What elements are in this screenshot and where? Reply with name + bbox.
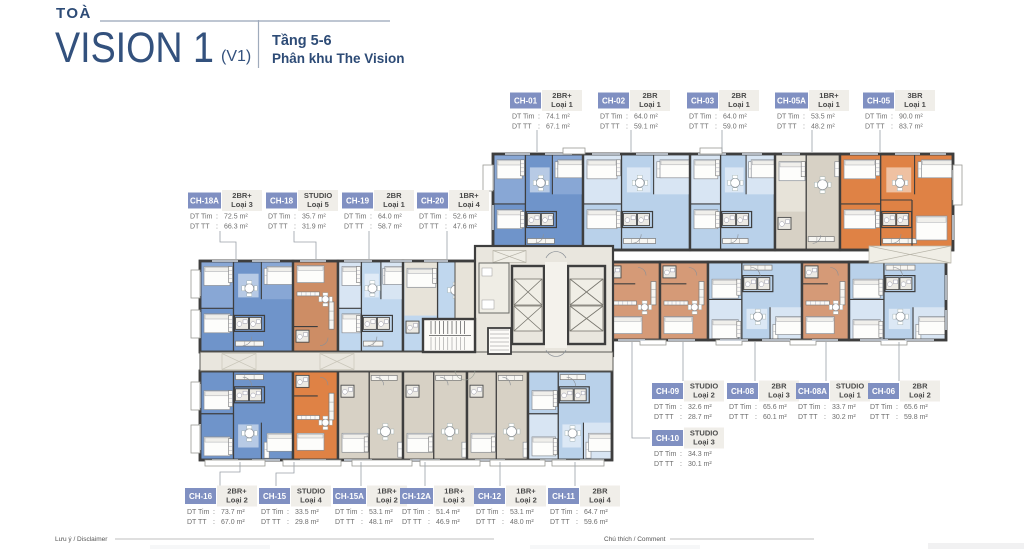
svg-text:CH-03: CH-03 [691,97,715,106]
svg-text:Lưu ý / Disclaimer: Lưu ý / Disclaimer [55,536,108,543]
svg-text::: : [538,124,540,131]
svg-text:CH-08: CH-08 [731,387,755,396]
svg-text:Loại 2: Loại 2 [376,496,398,505]
svg-text:83.7 m²: 83.7 m² [899,124,923,131]
svg-text:2BR: 2BR [386,191,402,200]
svg-text::: : [294,214,296,221]
svg-text:59.1 m²: 59.1 m² [634,124,658,131]
svg-text:Chú thích / Comment: Chú thích / Comment [604,536,666,543]
svg-text:DT TT: DT TT [777,124,797,131]
svg-text:2BR: 2BR [592,487,608,496]
svg-text:53.1 m²: 53.1 m² [369,509,393,516]
svg-text:48.1 m²: 48.1 m² [369,519,393,526]
svg-text:DT TT: DT TT [187,519,207,526]
svg-text:DT Tim: DT Tim [798,404,821,411]
svg-text::: : [896,414,898,421]
svg-text:DT TT: DT TT [870,414,890,421]
svg-text:CH-15: CH-15 [263,492,287,501]
svg-text::: : [576,509,578,516]
svg-text:59.0 m²: 59.0 m² [723,124,747,131]
svg-text::: : [216,214,218,221]
svg-text:2BR+: 2BR+ [552,91,572,100]
svg-text::: : [891,114,893,121]
svg-text:CH-10: CH-10 [656,434,680,443]
svg-text::: : [445,214,447,221]
svg-text:DT TT: DT TT [550,519,570,526]
svg-text:CH-16: CH-16 [189,492,213,501]
svg-text:DT Tim: DT Tim [550,509,573,516]
svg-text:(V1): (V1) [221,48,251,65]
svg-text:2BR+: 2BR+ [227,487,247,496]
svg-text::: : [803,114,805,121]
svg-text:DT Tim: DT Tim [419,214,442,221]
svg-text::: : [370,214,372,221]
svg-text:51.4 m²: 51.4 m² [436,509,460,516]
svg-text:35.7 m²: 35.7 m² [302,214,326,221]
svg-text:64.7 m²: 64.7 m² [584,509,608,516]
svg-text:CH-12: CH-12 [478,492,502,501]
svg-text:DT Tim: DT Tim [870,404,893,411]
svg-text:48.0 m²: 48.0 m² [510,519,534,526]
svg-text:CH-02: CH-02 [602,97,626,106]
svg-text:Loại 2: Loại 2 [693,391,715,400]
svg-text:66.3 m²: 66.3 m² [224,224,248,231]
svg-text:DT Tim: DT Tim [344,214,367,221]
svg-text:Loại 1: Loại 1 [818,100,840,109]
svg-text:DT TT: DT TT [689,124,709,131]
svg-text:DT Tim: DT Tim [600,114,623,121]
svg-text:1BR+: 1BR+ [459,191,479,200]
svg-text:1BR+: 1BR+ [516,487,536,496]
svg-text:90.0 m²: 90.0 m² [899,114,923,121]
svg-text:64.0 m²: 64.0 m² [723,114,747,121]
svg-text:1BR+: 1BR+ [444,487,464,496]
svg-text:3BR: 3BR [907,91,923,100]
svg-text::: : [803,124,805,131]
svg-text:VISION 1: VISION 1 [55,24,214,72]
svg-text::: : [213,509,215,516]
svg-text:28.7 m²: 28.7 m² [688,414,712,421]
svg-text::: : [294,224,296,231]
svg-text:53.1 m²: 53.1 m² [510,509,534,516]
svg-text:Loại 3: Loại 3 [768,391,790,400]
svg-text::: : [824,414,826,421]
svg-text:DT TT: DT TT [344,224,364,231]
svg-text:DT TT: DT TT [512,124,532,131]
svg-text::: : [361,519,363,526]
svg-text:2BR: 2BR [912,382,928,391]
svg-text:DT Tim: DT Tim [335,509,358,516]
svg-text:CH-18: CH-18 [270,197,294,206]
svg-text::: : [755,404,757,411]
svg-text::: : [445,224,447,231]
svg-text::: : [896,404,898,411]
svg-text:DT TT: DT TT [600,124,620,131]
svg-text::: : [626,114,628,121]
svg-text:STUDIO: STUDIO [304,191,333,200]
svg-text:Loại 1: Loại 1 [551,100,573,109]
svg-text:29.8 m²: 29.8 m² [295,519,319,526]
svg-text::: : [287,519,289,526]
svg-text::: : [213,519,215,526]
svg-text:67.1 m²: 67.1 m² [546,124,570,131]
svg-text::: : [502,509,504,516]
svg-text:30.2 m²: 30.2 m² [832,414,856,421]
svg-text:CH-20: CH-20 [421,197,445,206]
svg-text:STUDIO: STUDIO [690,429,719,438]
svg-text:32.6 m²: 32.6 m² [688,404,712,411]
svg-text:DT TT: DT TT [335,519,355,526]
svg-text:CH-06: CH-06 [872,387,896,396]
svg-text:65.6 m²: 65.6 m² [904,404,928,411]
svg-text:Loại 4: Loại 4 [589,496,612,505]
svg-text::: : [755,414,757,421]
svg-text:CH-09: CH-09 [656,387,680,396]
svg-text:DT TT: DT TT [419,224,439,231]
svg-text:47.6 m²: 47.6 m² [453,224,477,231]
svg-text::: : [680,451,682,458]
svg-text::: : [370,224,372,231]
svg-text:Loại 2: Loại 2 [909,391,931,400]
svg-text:CH-18A: CH-18A [190,197,219,206]
svg-text::: : [715,124,717,131]
svg-text:STUDIO: STUDIO [297,487,326,496]
svg-text:DT TT: DT TT [798,414,818,421]
svg-text::: : [361,509,363,516]
svg-text:DT TT: DT TT [865,124,885,131]
svg-text:Loại 4: Loại 4 [458,200,481,209]
svg-text::: : [824,404,826,411]
svg-text:DT Tim: DT Tim [190,214,213,221]
svg-text:STUDIO: STUDIO [690,382,719,391]
svg-text:CH-05A: CH-05A [777,97,806,106]
svg-text:DT Tim: DT Tim [187,509,210,516]
svg-text:53.5 m²: 53.5 m² [811,114,835,121]
svg-text:60.1 m²: 60.1 m² [763,414,787,421]
svg-text:74.1 m²: 74.1 m² [546,114,570,121]
svg-text::: : [626,124,628,131]
svg-text:TOÀ: TOÀ [56,5,92,22]
svg-text:DT TT: DT TT [654,414,674,421]
svg-text:CH-08A: CH-08A [798,387,827,396]
svg-text:DT TT: DT TT [261,519,281,526]
svg-text:DT TT: DT TT [268,224,288,231]
svg-text:DT Tim: DT Tim [654,451,677,458]
svg-text:DT TT: DT TT [190,224,210,231]
svg-text:DT Tim: DT Tim [512,114,535,121]
svg-text:58.7 m²: 58.7 m² [378,224,402,231]
svg-text::: : [287,509,289,516]
svg-text:CH-15A: CH-15A [335,492,364,501]
svg-text:CH-11: CH-11 [552,492,575,501]
svg-text:DT Tim: DT Tim [729,404,752,411]
svg-text::: : [715,114,717,121]
svg-text::: : [680,404,682,411]
svg-text:DT Tim: DT Tim [654,404,677,411]
svg-text:2BR: 2BR [731,91,747,100]
svg-text:48.2 m²: 48.2 m² [811,124,835,131]
svg-text:73.7 m²: 73.7 m² [221,509,245,516]
svg-text::: : [538,114,540,121]
svg-text:CH-19: CH-19 [346,197,370,206]
svg-text:52.6 m²: 52.6 m² [453,214,477,221]
svg-text:Loại 4: Loại 4 [300,496,323,505]
svg-text:34.3 m²: 34.3 m² [688,451,712,458]
svg-text::: : [680,461,682,468]
svg-text:Loại 3: Loại 3 [693,438,715,447]
svg-text:59.6 m²: 59.6 m² [584,519,608,526]
svg-text:30.1 m²: 30.1 m² [688,461,712,468]
svg-text:33.7 m²: 33.7 m² [832,404,856,411]
svg-text:DT Tim: DT Tim [689,114,712,121]
svg-text:Phân khu The Vision: Phân khu The Vision [272,51,405,66]
svg-text:Loại 1: Loại 1 [639,100,661,109]
svg-text:Loại 1: Loại 1 [904,100,926,109]
svg-text:DT TT: DT TT [654,461,674,468]
svg-text:67.0 m²: 67.0 m² [221,519,245,526]
svg-text:DT TT: DT TT [729,414,749,421]
svg-text:CH-05: CH-05 [867,97,891,106]
svg-text:DT Tim: DT Tim [777,114,800,121]
svg-text:64.0 m²: 64.0 m² [378,214,402,221]
svg-text:Loại 1: Loại 1 [383,200,405,209]
svg-text:CH-12A: CH-12A [402,492,431,501]
svg-text:Tầng 5-6: Tầng 5-6 [272,33,332,49]
svg-text:DT Tim: DT Tim [402,509,425,516]
svg-text:Loại 5: Loại 5 [307,200,329,209]
svg-text::: : [428,509,430,516]
svg-text:72.5 m²: 72.5 m² [224,214,248,221]
svg-text::: : [216,224,218,231]
svg-text::: : [891,124,893,131]
svg-text:1BR+: 1BR+ [377,487,397,496]
svg-text::: : [680,414,682,421]
svg-text:Loại 2: Loại 2 [226,496,248,505]
svg-text:33.5 m²: 33.5 m² [295,509,319,516]
svg-text:DT Tim: DT Tim [261,509,284,516]
svg-text:2BR+: 2BR+ [232,191,252,200]
svg-text:DT Tim: DT Tim [268,214,291,221]
svg-text:Loại 3: Loại 3 [231,200,253,209]
svg-text:65.6 m²: 65.6 m² [763,404,787,411]
svg-text:46.9 m²: 46.9 m² [436,519,460,526]
svg-text:2BR: 2BR [771,382,787,391]
svg-text:STUDIO: STUDIO [836,382,865,391]
svg-text:Loại 1: Loại 1 [839,391,861,400]
svg-text::: : [502,519,504,526]
svg-text:31.9 m²: 31.9 m² [302,224,326,231]
svg-text::: : [576,519,578,526]
svg-text:Loại 2: Loại 2 [515,496,537,505]
svg-text:1BR+: 1BR+ [819,91,839,100]
svg-text:2BR: 2BR [642,91,658,100]
svg-text:DT Tim: DT Tim [865,114,888,121]
svg-text:DT TT: DT TT [476,519,496,526]
svg-text:CH-01: CH-01 [514,97,538,106]
svg-text:59.8 m²: 59.8 m² [904,414,928,421]
svg-text:Loại 1: Loại 1 [728,100,750,109]
svg-text:64.0 m²: 64.0 m² [634,114,658,121]
svg-text:Loại 3: Loại 3 [443,496,465,505]
svg-text::: : [428,519,430,526]
svg-text:DT Tim: DT Tim [476,509,499,516]
svg-text:DT TT: DT TT [402,519,422,526]
